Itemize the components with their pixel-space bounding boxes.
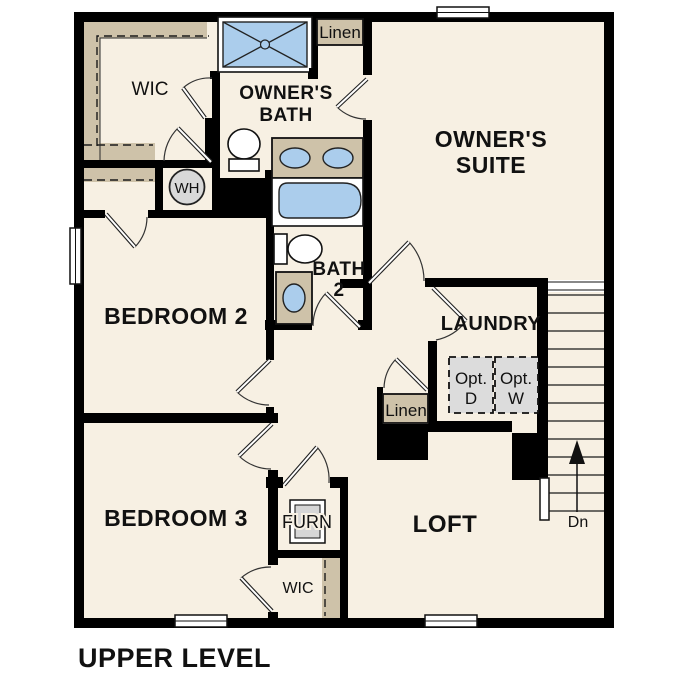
label-opt-washer-1: Opt. (500, 369, 532, 388)
floor-plan-svg: WIC OWNER'S BATH Linen OWNER'S SUITE BED… (0, 0, 687, 687)
window-bottom-left (175, 615, 227, 627)
label-opt-dryer-2: D (465, 389, 477, 408)
shower (218, 17, 312, 72)
label-stairs-down: Dn (568, 514, 588, 531)
sink-left (280, 148, 310, 168)
window-bottom-right (425, 615, 477, 627)
label-linen-lower: Linen (385, 401, 427, 420)
wic-bottom-shelving (322, 558, 342, 618)
label-opt-dryer-1: Opt. (455, 369, 487, 388)
label-owners-bath-1: OWNER'S (239, 83, 333, 104)
stair-railing (540, 478, 549, 520)
label-bedroom2: BEDROOM 2 (104, 303, 248, 329)
label-owners-suite-2: SUITE (456, 152, 526, 178)
stair-cased-opening (548, 280, 604, 292)
linen-top-wall-stub (309, 68, 318, 76)
plan-title: UPPER LEVEL (78, 643, 271, 673)
label-water-heater: WH (175, 180, 200, 197)
label-wic-bottom: WIC (282, 580, 313, 597)
vanity-bath2 (276, 272, 312, 324)
label-bath2-1: BATH (312, 259, 365, 280)
label-owners-bath-2: BATH (259, 105, 312, 126)
label-linen-top: Linen (319, 23, 361, 42)
sink-right (323, 148, 353, 168)
label-wic-top: WIC (132, 79, 169, 100)
bathtub (272, 178, 363, 226)
label-furnace: FURN (282, 512, 332, 532)
label-opt-washer-2: W (508, 389, 524, 408)
label-owners-suite-1: OWNER'S (435, 126, 547, 152)
label-bath2-2: 2 (333, 280, 344, 301)
window-top (437, 7, 489, 18)
label-loft: LOFT (413, 511, 478, 538)
shower-drain (261, 40, 270, 49)
vanity-owners-bath (272, 138, 363, 178)
window-left (70, 228, 81, 284)
label-laundry: LAUNDRY (441, 313, 542, 335)
label-bedroom3: BEDROOM 3 (104, 505, 248, 531)
sink (283, 284, 305, 312)
toilet-owners-bath (228, 129, 260, 171)
